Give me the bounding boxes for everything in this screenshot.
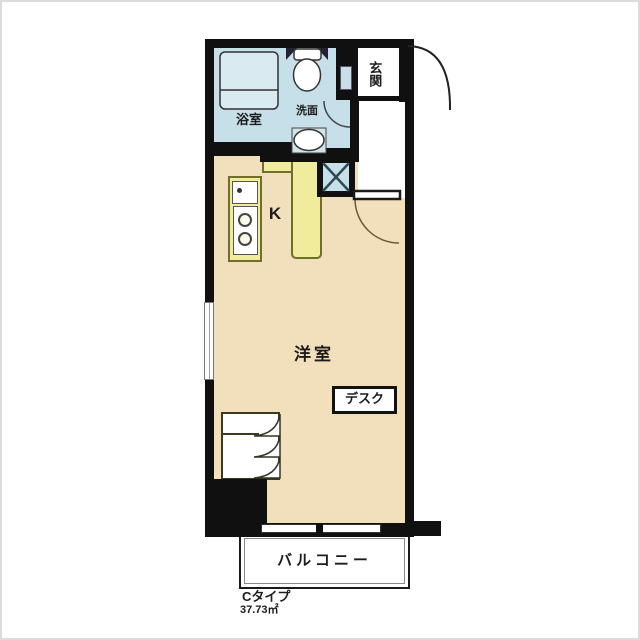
stove-burner-icon xyxy=(238,232,252,246)
type-label: Cタイプ xyxy=(242,590,322,604)
floorplan-image: 浴室 洗面 玄関 K 洋室 デスク バルコニー Cタイプ 37.73㎡ xyxy=(0,0,640,640)
wall-top xyxy=(205,39,414,48)
closet-shelf-line xyxy=(223,433,259,435)
closet xyxy=(221,412,280,480)
kitchen-sink-icon xyxy=(232,181,258,204)
balcony-label: バルコニー xyxy=(242,553,407,570)
area-label: 37.73㎡ xyxy=(240,604,320,616)
wall-left-lower xyxy=(205,380,214,480)
utility-box xyxy=(340,66,352,90)
main-room-label: 洋室 xyxy=(274,346,354,365)
pipe-shaft-icon xyxy=(323,163,349,191)
bathroom-floor xyxy=(214,46,284,144)
washroom-label: 洗面 xyxy=(285,105,329,117)
wall-stub-bottom-right xyxy=(405,521,441,536)
window-icon xyxy=(204,302,214,380)
wall-block-bottom-left xyxy=(205,479,267,537)
entrance-label: 玄関 xyxy=(367,50,381,98)
stove-burner-icon xyxy=(238,213,252,227)
desk-label: デスク xyxy=(332,392,397,406)
kitchen-sink-dot xyxy=(237,188,242,193)
hallway-floor xyxy=(358,98,405,198)
bathroom-label: 浴室 xyxy=(220,113,278,127)
kitchen-label: K xyxy=(264,205,286,224)
wall-left-upper xyxy=(205,39,214,302)
sliding-door-tick xyxy=(316,523,323,534)
wall-hallway-left xyxy=(350,96,359,162)
wall-right xyxy=(405,39,414,537)
